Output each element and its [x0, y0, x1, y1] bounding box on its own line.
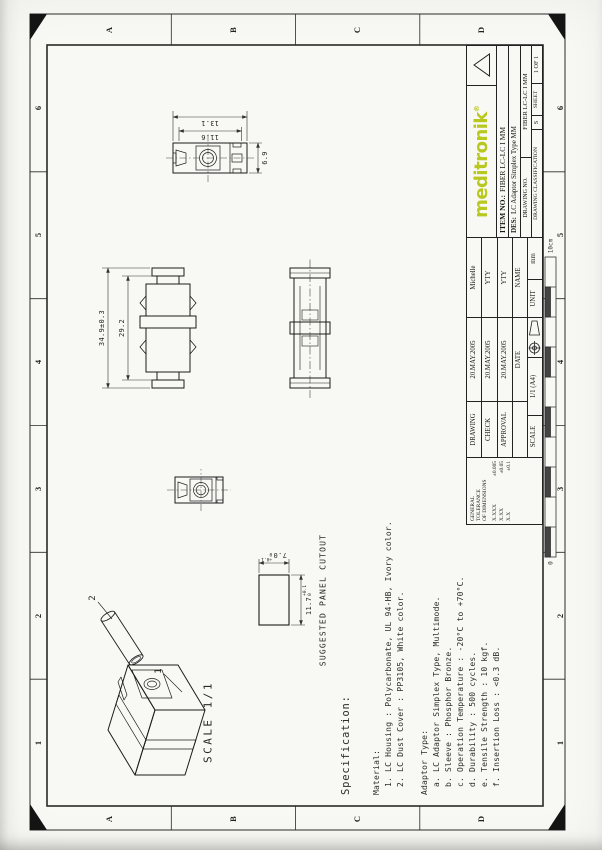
- dim-cutout-width-value: 11.7: [305, 597, 313, 615]
- unit-label: UNIT: [528, 279, 542, 317]
- approval-table: DRAWING 20.MAY.2005 Michelle CHECK 20.MA…: [467, 237, 542, 457]
- item-no-row: ITEM NO.: FIBER LC-LC I MM: [497, 46, 509, 237]
- unit-value: mm: [528, 237, 542, 279]
- scale-label: SCALE: [528, 415, 542, 457]
- item-no-value: FIBER LC-LC I MM: [499, 127, 507, 192]
- zone-label: 4: [555, 360, 565, 364]
- title-block: GENERAL TOLERANCE OF DIMENSIONS X.XXX±0.…: [466, 45, 543, 525]
- date-header: DATE: [513, 317, 527, 401]
- approval-name: Michelle: [467, 237, 482, 317]
- approval-role: CHECK: [482, 401, 497, 457]
- dim-cutout-height: 7.0+0.10: [261, 550, 287, 560]
- iso-scale-note: SCALE 1/1: [202, 681, 215, 763]
- spec-adaptor-heading: Adaptor Type:: [420, 730, 429, 795]
- triangle-mark-icon: [467, 46, 497, 85]
- dim-body-length: 29.2: [118, 319, 126, 337]
- side-view: [102, 268, 196, 388]
- zone-label: 1: [555, 741, 565, 745]
- zone-label: 3: [33, 487, 43, 491]
- title-block-right: meditronik® ITEM NO.: FIBER LC-LC I MM D…: [467, 46, 542, 237]
- approval-date: 20.MAY.2005: [482, 317, 497, 401]
- drawing-sheet: 1 2 3 4 5 6 1 2 3 4 5 6 A B C D A B C D …: [0, 0, 602, 850]
- des-row: DES: LC Adaptor Simplex Type MM: [509, 46, 521, 237]
- front-view: [290, 258, 330, 398]
- spec-adaptor-item: f. Insertion Loss : <0.3 dB.: [492, 647, 501, 787]
- des-label: DES:: [511, 217, 518, 233]
- drawing-no-value: FIBER LC-LC I MM: [521, 46, 532, 157]
- zone-label: D: [476, 27, 486, 33]
- zone-label: C: [352, 27, 362, 33]
- zone-label: D: [476, 816, 486, 822]
- balloon-dust-cover: 2: [88, 595, 98, 600]
- zone-label: B: [228, 27, 238, 33]
- zone-label: 5: [33, 233, 43, 237]
- sheet-label: SHEET: [532, 83, 542, 115]
- tolerance-cell: GENERAL TOLERANCE OF DIMENSIONS X.XXX±0.…: [467, 457, 542, 524]
- panel-cutout: [259, 559, 305, 625]
- approval-date: 20.MAY.2005: [498, 317, 513, 401]
- rear-end-view: [167, 469, 231, 511]
- spec-material-item: 2. LC Dust Cover : PP3105, White color.: [396, 591, 405, 787]
- zone-label: 2: [555, 614, 565, 618]
- dim-end-inner: 11.6: [201, 133, 219, 141]
- scanned-drawing-page: 1 2 3 4 5 6 1 2 3 4 5 6 A B C D A B C D …: [0, 0, 602, 850]
- dim-overall-length: 34.9±0.3: [98, 310, 106, 346]
- spec-material-heading: Material:: [372, 750, 381, 795]
- sheet-value: 1 OF 1: [532, 46, 542, 83]
- dim-end-outer: 13.1: [201, 119, 219, 127]
- zone-label: 2: [33, 614, 43, 618]
- scale-value: 1/1 (A4): [528, 357, 542, 415]
- approval-role: APPROVAL: [498, 401, 513, 457]
- item-no-label: ITEM NO.:: [499, 195, 507, 233]
- approval-role: DRAWING: [467, 401, 482, 457]
- zone-label: 3: [555, 487, 565, 491]
- approval-date: 20.MAY.2005: [467, 317, 482, 401]
- spec-adaptor-item: a. LC Adaptor Simplex Type, Multimode.: [432, 596, 441, 787]
- zone-label: 1: [33, 741, 43, 745]
- company-logo: meditronik®: [467, 85, 497, 237]
- balloon-body: 1: [154, 668, 164, 673]
- dim-cutout-height-tolerance: +0.10: [261, 550, 272, 560]
- spec-adaptor-item: e. Tensile Strength : 10 kgf.: [480, 642, 489, 787]
- ruler-zero-label: 0: [548, 561, 555, 565]
- zone-label: A: [104, 816, 114, 822]
- ruler-bar: [545, 257, 556, 557]
- approval-blank: [513, 401, 527, 457]
- name-header: NAME: [513, 237, 527, 317]
- iso-view: [98, 602, 205, 775]
- zone-label: 4: [33, 360, 43, 364]
- spec-adaptor-item: c. Operation Temperature : -20°C to +70°…: [456, 576, 465, 787]
- meditronik-logo: meditronik®: [471, 105, 492, 218]
- dim-cutout-width: 11.7+0.10: [304, 585, 314, 615]
- spec-title: Specification:: [340, 695, 352, 795]
- dim-cutout-height-value: 7.0: [273, 551, 287, 559]
- panel-cutout-label: SUGGESTED PANEL CUTOUT: [319, 534, 328, 666]
- zone-label: C: [352, 816, 362, 822]
- zone-label: 6: [555, 106, 565, 110]
- zone-label: B: [228, 816, 238, 822]
- spec-adaptor-item: d. Durability : 500 cycles.: [468, 652, 477, 787]
- dim-cutout-width-tolerance: +0.10: [304, 585, 314, 596]
- classification-label: DRAWING CLASSIFICATION: [532, 129, 542, 237]
- spec-material-item: 1. LC Housing : Polycarbonate, UL 94-HB,…: [384, 521, 393, 787]
- zone-label: A: [104, 27, 114, 33]
- approval-name: YTY: [498, 237, 513, 317]
- third-angle-projection-icon: [528, 317, 542, 357]
- drawing-no-label: DRAWING NO.: [521, 157, 532, 237]
- classification-value: S: [532, 115, 542, 129]
- zone-label: 6: [33, 106, 43, 110]
- zone-label: 5: [555, 233, 565, 237]
- dim-end-width: 6.9: [261, 151, 269, 165]
- ruler-end-label: 10cm: [548, 239, 555, 253]
- approval-name: YTY: [482, 237, 497, 317]
- des-value: LC Adaptor Simplex Type MM: [511, 126, 518, 214]
- spec-adaptor-item: b. Sleeve : Phosphor Bronze.: [444, 647, 453, 787]
